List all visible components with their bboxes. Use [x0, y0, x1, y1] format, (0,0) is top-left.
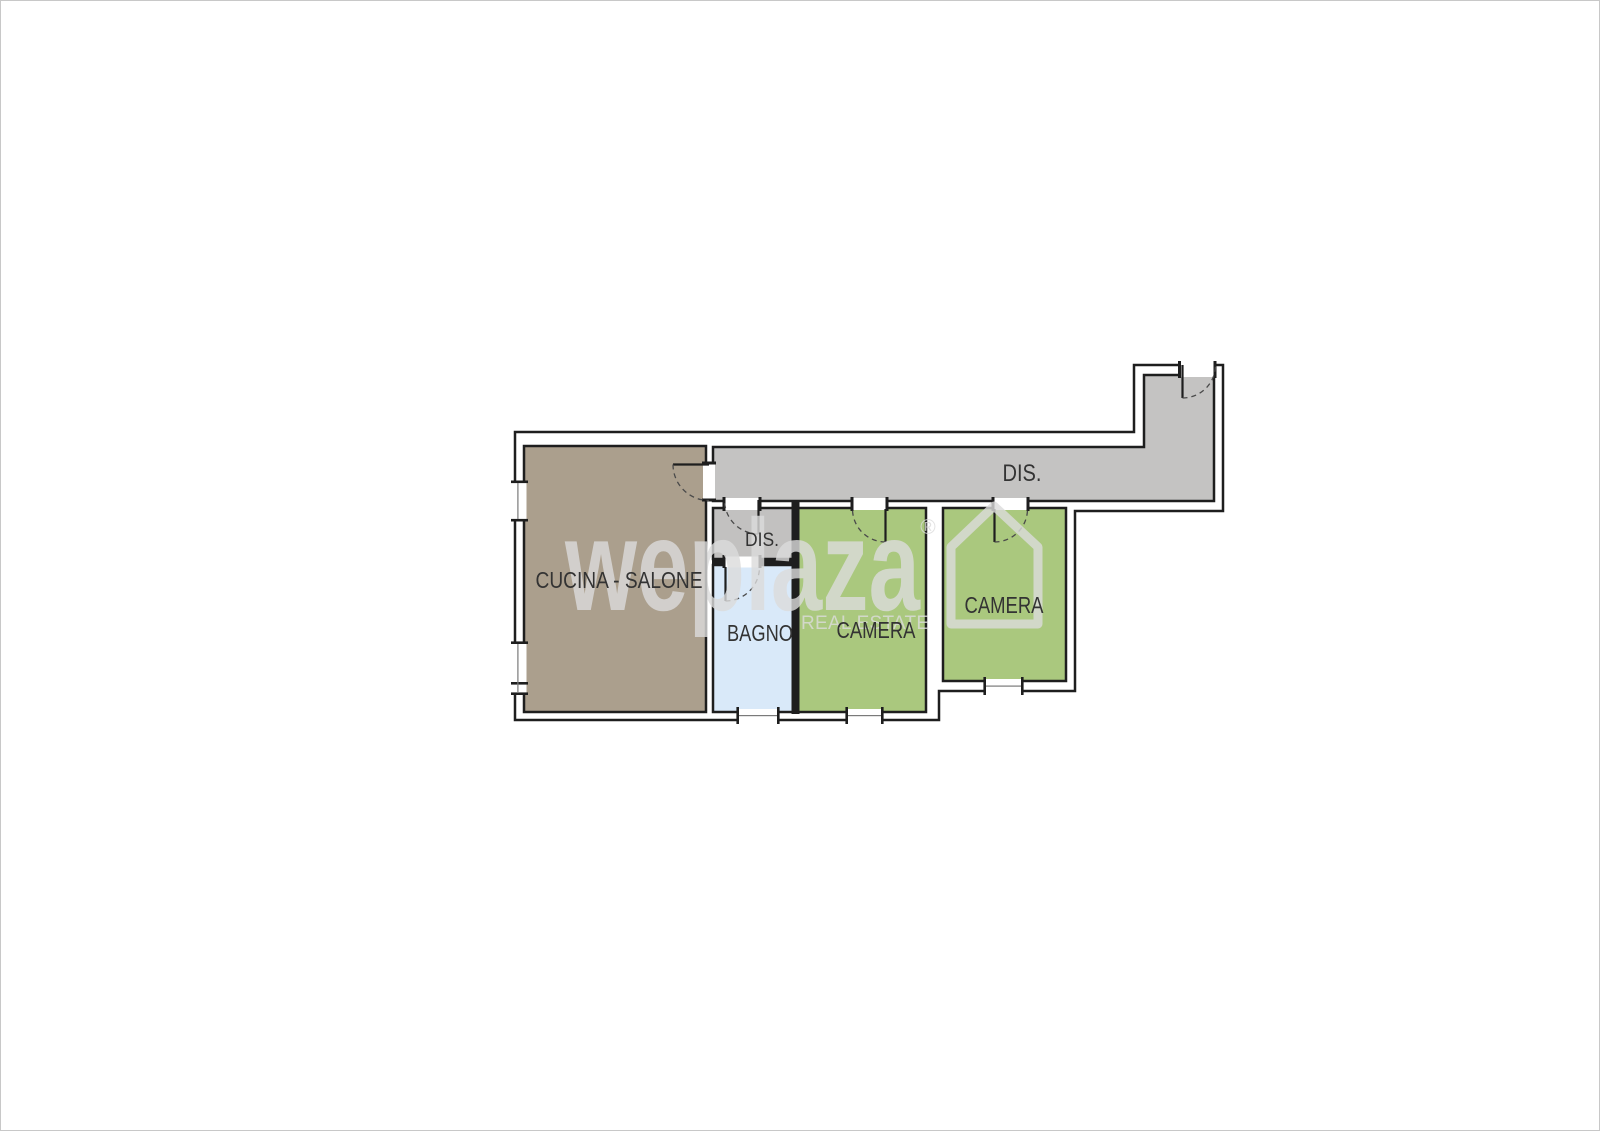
label-camera-1: CAMERA — [837, 617, 917, 643]
label-camera-2: CAMERA — [965, 592, 1045, 618]
watermark-registered-icon: ® — [920, 516, 936, 539]
floorplan-canvas: weplaza ® REAL ESTATE CUCINA - SALONE DI… — [0, 0, 1600, 1131]
label-bagno: BAGNO — [727, 620, 793, 646]
floorplan-drawing: weplaza ® REAL ESTATE CUCINA - SALONE DI… — [1, 1, 1600, 1131]
label-disimpegno: DIS. — [745, 530, 779, 551]
label-cucina-salone: CUCINA - SALONE — [536, 567, 703, 593]
label-corridor-dis: DIS. — [1003, 460, 1042, 487]
